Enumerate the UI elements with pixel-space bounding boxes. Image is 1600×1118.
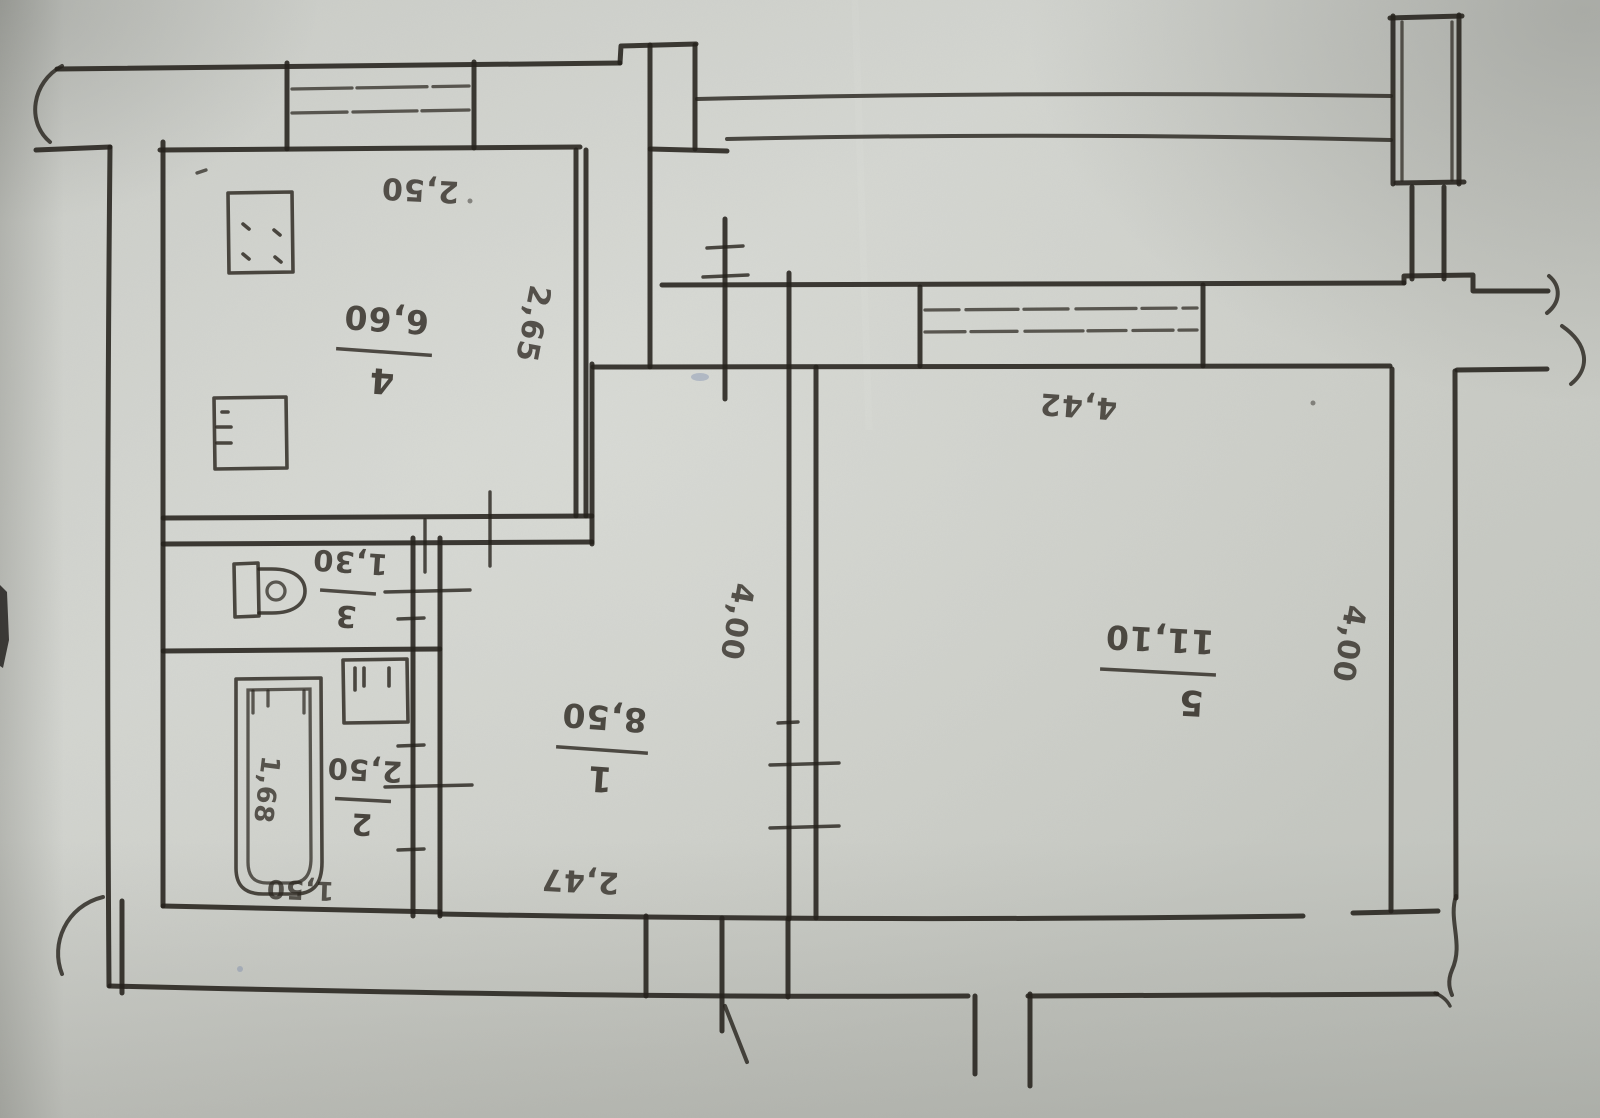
wall-segment bbox=[1457, 369, 1547, 370]
room-area: 1,30 bbox=[311, 542, 389, 581]
wall-segment bbox=[163, 649, 440, 651]
room-number: 1 bbox=[587, 757, 614, 799]
wall-segment bbox=[108, 147, 110, 986]
wall-segment bbox=[593, 366, 1390, 367]
window-icon bbox=[925, 330, 1197, 332]
room-area: 6,60 bbox=[342, 297, 430, 342]
dimension-tick bbox=[707, 246, 743, 248]
room-number: 4 bbox=[369, 359, 396, 401]
blue-pen-mark bbox=[691, 373, 709, 381]
wall-segment bbox=[650, 149, 727, 151]
wall-segment bbox=[160, 147, 580, 150]
room-area: 11,10 bbox=[1104, 617, 1215, 662]
dimension-tick bbox=[703, 275, 748, 277]
dim-hall-width: 2,47 bbox=[540, 861, 620, 900]
wall-segment bbox=[1028, 994, 1437, 996]
pillar-edge bbox=[1390, 16, 1462, 18]
dimension-tick bbox=[398, 745, 424, 746]
room-number: 2 bbox=[350, 805, 373, 841]
dimension-tick bbox=[770, 826, 839, 828]
dim-kitchen-width: 2,50 bbox=[380, 170, 460, 209]
wall-segment bbox=[1391, 369, 1392, 911]
wall-segment bbox=[662, 283, 1404, 285]
dimension-text: 1,50 bbox=[265, 873, 334, 905]
wall-segment bbox=[163, 516, 592, 518]
wall-segment bbox=[36, 147, 110, 150]
dimension-text: 2,50 bbox=[380, 170, 460, 209]
floor-plan-drawing: 6,60 4 1,30 3 2,50 2 8,50 1 11,10 5 2,50 bbox=[0, 0, 1600, 1118]
dimension-text: 2,47 bbox=[540, 861, 620, 900]
room-area: 2,50 bbox=[326, 751, 403, 789]
ink-speck bbox=[1311, 401, 1316, 406]
dim-bath-width: 1,50 bbox=[265, 873, 334, 905]
dimension-text: 4,42 bbox=[1038, 385, 1118, 425]
wall-segment bbox=[1353, 911, 1438, 913]
blue-pen-mark bbox=[237, 966, 243, 972]
floor-plan-scan: 6,60 4 1,30 3 2,50 2 8,50 1 11,10 5 2,50 bbox=[0, 0, 1600, 1118]
dimension-tick bbox=[385, 590, 470, 592]
dimension-tick bbox=[398, 849, 424, 850]
room-number: 3 bbox=[335, 597, 358, 633]
paper-grain bbox=[0, 0, 1600, 1118]
dimension-tick bbox=[398, 618, 424, 619]
dimension-tick bbox=[770, 763, 839, 765]
ink-speck bbox=[468, 199, 473, 204]
paper-background bbox=[0, 0, 1600, 1118]
dim-entry-width: 4,42 bbox=[1038, 385, 1118, 425]
pillar-edge bbox=[1396, 182, 1464, 183]
room-number: 5 bbox=[1178, 681, 1204, 722]
wall-segment bbox=[163, 542, 592, 544]
dimension-tick bbox=[778, 722, 798, 723]
window-icon bbox=[925, 308, 1197, 310]
wall-segment bbox=[1455, 371, 1456, 898]
room-area: 8,50 bbox=[560, 695, 648, 740]
